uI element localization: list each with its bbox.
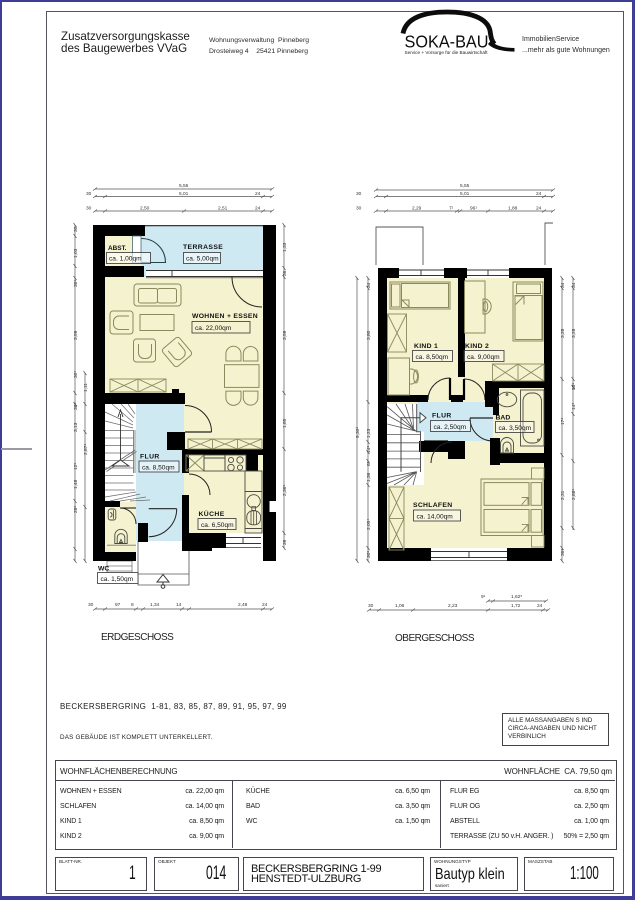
svg-text:WOHNEN + ESSEN: WOHNEN + ESSEN — [192, 313, 258, 320]
svg-text:24: 24 — [536, 206, 542, 212]
svg-text:97: 97 — [115, 602, 121, 608]
svg-text:ca. 8,50qm: ca. 8,50qm — [416, 354, 449, 361]
svg-text:8: 8 — [131, 602, 134, 608]
svg-text:ca. 1,50qm: ca. 1,50qm — [101, 576, 134, 583]
svg-text:14⁵: 14⁵ — [366, 446, 372, 453]
svg-text:9,30²: 9,30² — [355, 427, 361, 438]
svg-text:28⁵: 28⁵ — [73, 506, 79, 513]
svg-text:ABST.: ABST. — [108, 245, 127, 252]
svg-text:1,85: 1,85 — [282, 418, 288, 428]
svg-text:ca. 9,00qm: ca. 9,00qm — [467, 354, 500, 361]
svg-text:7¹: 7¹ — [449, 206, 454, 212]
svg-text:ca. 14,00qm: ca. 14,00qm — [417, 514, 454, 521]
svg-text:30: 30 — [356, 191, 362, 197]
svg-text:1,03: 1,03 — [73, 248, 79, 258]
svg-text:36¹: 36¹ — [560, 549, 566, 556]
svg-text:24: 24 — [537, 603, 543, 609]
svg-text:1,62⁵: 1,62⁵ — [511, 594, 522, 600]
svg-text:ca. 22,00qm: ca. 22,00qm — [195, 325, 232, 332]
svg-text:34: 34 — [571, 282, 577, 288]
svg-text:ca. 2,50qm: ca. 2,50qm — [434, 424, 467, 431]
svg-text:1,72: 1,72 — [511, 603, 521, 609]
svg-text:30: 30 — [368, 603, 374, 609]
svg-text:1,11: 1,11 — [83, 383, 89, 392]
svg-text:30: 30 — [86, 191, 92, 197]
svg-text:1,34: 1,34 — [150, 602, 160, 608]
svg-text:24: 24 — [255, 191, 261, 197]
svg-text:3,28: 3,28 — [571, 328, 577, 338]
svg-text:3,59: 3,59 — [73, 330, 79, 340]
svg-text:2,36⁵: 2,36⁵ — [282, 485, 288, 496]
svg-text:2,51: 2,51 — [218, 206, 228, 212]
svg-text:3,13: 3,13 — [73, 422, 79, 432]
svg-text:8⁵: 8⁵ — [366, 461, 372, 466]
svg-text:2,87¹: 2,87¹ — [83, 444, 89, 455]
svg-text:3,59: 3,59 — [282, 330, 288, 340]
svg-text:96¹: 96¹ — [470, 206, 477, 212]
svg-text:30⁷: 30⁷ — [73, 371, 79, 378]
svg-text:ca. 6,50qm: ca. 6,50qm — [201, 522, 234, 529]
svg-text:KIND 2: KIND 2 — [465, 343, 489, 350]
svg-text:1,33: 1,33 — [282, 242, 288, 252]
svg-text:5,55: 5,55 — [460, 183, 470, 189]
svg-text:14⁵: 14⁵ — [571, 403, 577, 410]
svg-text:5,01: 5,01 — [179, 191, 189, 197]
svg-text:36¹: 36¹ — [73, 280, 79, 287]
svg-text:1,48: 1,48 — [73, 479, 79, 489]
svg-text:17¹: 17¹ — [560, 418, 566, 425]
svg-text:2,88⁵: 2,88⁵ — [571, 489, 577, 500]
svg-text:2,50: 2,50 — [140, 206, 150, 212]
svg-text:5,01: 5,01 — [460, 191, 470, 197]
svg-text:ca. 3,50qm: ca. 3,50qm — [499, 425, 532, 432]
svg-text:KÜCHE: KÜCHE — [199, 509, 225, 518]
svg-text:34: 34 — [560, 282, 566, 288]
svg-text:30: 30 — [73, 226, 79, 232]
svg-text:39: 39 — [282, 539, 288, 545]
svg-text:3,80: 3,80 — [366, 330, 372, 340]
svg-text:1,36: 1,36 — [366, 472, 372, 482]
svg-text:ca. 1,00qm: ca. 1,00qm — [109, 256, 142, 263]
svg-text:KIND 1: KIND 1 — [414, 343, 438, 350]
svg-text:2,23: 2,23 — [448, 603, 458, 609]
svg-text:30: 30 — [88, 602, 94, 608]
svg-text:SCHLAFEN: SCHLAFEN — [413, 502, 452, 509]
svg-text:3,28: 3,28 — [560, 328, 566, 338]
svg-text:30: 30 — [86, 206, 92, 212]
svg-text:TERRASSE: TERRASSE — [183, 244, 223, 251]
svg-text:2,31: 2,31 — [560, 490, 566, 500]
svg-text:FLUR: FLUR — [140, 454, 160, 461]
svg-text:5,55: 5,55 — [179, 183, 189, 189]
svg-text:FLUR: FLUR — [432, 413, 452, 420]
svg-text:24: 24 — [536, 191, 542, 197]
svg-text:58⁵: 58⁵ — [571, 383, 577, 390]
svg-text:30⁵: 30⁵ — [366, 551, 372, 558]
svg-text:2,48: 2,48 — [238, 602, 248, 608]
svg-text:30: 30 — [356, 206, 362, 212]
svg-text:1,23: 1,23 — [366, 428, 372, 438]
svg-text:38⁵: 38⁵ — [73, 403, 79, 410]
svg-text:2,05⁴: 2,05⁴ — [366, 519, 372, 530]
svg-text:24: 24 — [255, 206, 261, 212]
svg-text:ca. 5,00qm: ca. 5,00qm — [186, 256, 219, 263]
svg-text:1,88: 1,88 — [508, 206, 518, 212]
svg-text:9¹: 9¹ — [481, 594, 486, 600]
svg-text:34: 34 — [366, 282, 372, 288]
svg-text:ca. 8,50qm: ca. 8,50qm — [142, 465, 175, 472]
svg-text:24: 24 — [262, 602, 268, 608]
svg-text:WC: WC — [98, 566, 109, 573]
svg-text:2,29: 2,29 — [412, 206, 422, 212]
svg-text:1,06: 1,06 — [395, 603, 405, 609]
svg-text:BAD: BAD — [496, 415, 511, 422]
svg-text:36: 36 — [282, 270, 288, 276]
svg-text:12⁵: 12⁵ — [73, 463, 79, 470]
svg-text:14: 14 — [176, 602, 182, 608]
